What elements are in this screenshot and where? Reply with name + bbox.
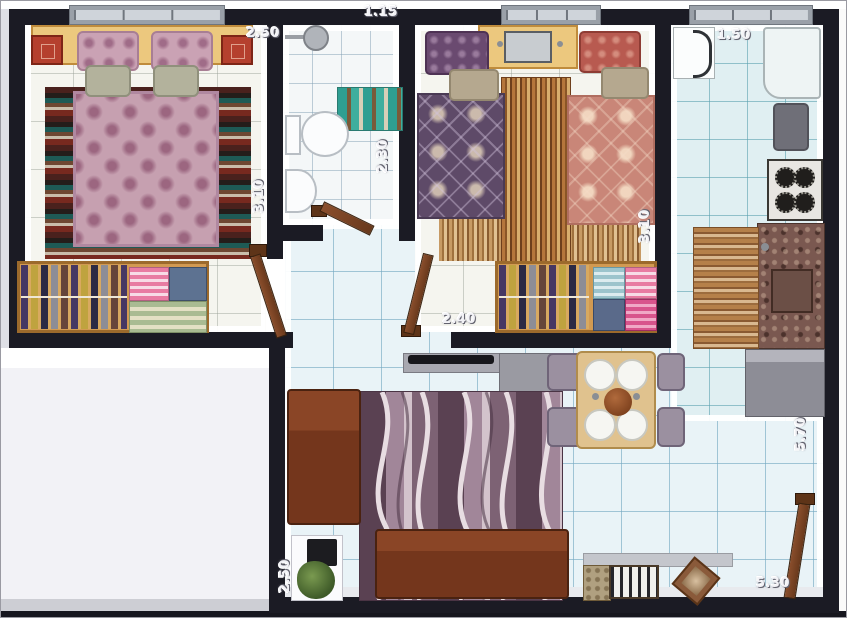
nightstand-left xyxy=(31,35,63,65)
dining-table xyxy=(576,351,656,449)
dim-bedroom1-depth: 3.10 xyxy=(253,173,267,219)
sofa xyxy=(375,529,569,599)
kitchen-rug xyxy=(693,227,759,349)
wall-right xyxy=(823,9,839,613)
bed-cushion xyxy=(85,65,131,97)
kitchen-base-cabinet xyxy=(745,349,825,417)
bed-cushion xyxy=(449,69,499,101)
plate xyxy=(584,359,616,391)
sideboard xyxy=(583,565,611,601)
dim-bedroom2-depth: 3.10 xyxy=(639,203,653,249)
bedroom2-window xyxy=(501,5,601,25)
toilet-tank xyxy=(285,115,301,155)
folded-clothes xyxy=(625,299,657,331)
dim-bathroom-width: 1.15 xyxy=(359,6,403,20)
floor-plan: 2.50 3.10 1.15 2.30 3.10 2.40 1.50 5.70 … xyxy=(0,0,847,618)
dim-bathroom-depth: 2.30 xyxy=(377,133,391,179)
double-bed xyxy=(73,91,219,247)
headboard-mirror xyxy=(504,31,552,63)
book-rack xyxy=(609,565,659,599)
wall-bathroom-bottom xyxy=(267,225,323,241)
wardrobe-rail xyxy=(499,296,589,298)
exterior-white-band xyxy=(1,348,269,368)
wall-bedroom1-bottom xyxy=(9,332,293,348)
table-dot xyxy=(633,393,640,400)
folded-clothes xyxy=(593,299,625,331)
dim-living-left-depth: 2.50 xyxy=(279,553,293,599)
plate xyxy=(616,359,648,391)
wall-bedroom1-bathroom xyxy=(267,9,283,259)
bed-cushion xyxy=(153,65,199,97)
counter-sink xyxy=(771,269,813,313)
exterior-left-strip xyxy=(1,9,9,348)
shower-head xyxy=(303,25,329,51)
plant xyxy=(297,561,335,599)
wardrobe-rail xyxy=(21,296,127,298)
wall-bedroom2-kitchen xyxy=(655,9,671,348)
table-dot xyxy=(592,393,599,400)
sideboard-gray xyxy=(499,353,553,393)
exterior-area xyxy=(1,348,269,618)
wall-bedroom2-bottom xyxy=(451,332,671,348)
dim-hall-width: 2.40 xyxy=(437,313,481,327)
folded-clothes xyxy=(593,267,625,299)
twin-bed-left xyxy=(417,93,505,219)
stove xyxy=(767,159,823,221)
fridge xyxy=(763,27,821,99)
headboard-knob xyxy=(497,41,503,47)
folded-clothes xyxy=(129,267,169,301)
folded-clothes xyxy=(625,267,657,299)
sofa-chaise xyxy=(287,389,361,525)
toilet-bowl xyxy=(301,111,349,157)
folded-clothes xyxy=(129,301,207,333)
cutting-board xyxy=(773,103,809,151)
center-bowl xyxy=(604,388,632,416)
dim-bedroom1-width: 2.50 xyxy=(237,27,289,41)
tv xyxy=(408,355,494,364)
dim-kitchen-width: 1.50 xyxy=(711,29,757,43)
exterior-right-strip xyxy=(839,9,847,611)
bed-cushion xyxy=(601,67,649,99)
kitchen-window xyxy=(689,5,813,25)
bedroom2-runner-rug xyxy=(501,77,571,263)
dim-right-depth: 5.70 xyxy=(795,411,809,457)
headboard-knob xyxy=(557,41,563,47)
dim-living-bottom-width: 5.30 xyxy=(749,577,797,591)
folded-clothes xyxy=(169,267,207,301)
kitchen-sink xyxy=(673,27,715,79)
bedroom1-headboard xyxy=(31,25,253,65)
dining-chair xyxy=(657,407,685,447)
bedroom1-window xyxy=(69,5,225,25)
dining-chair xyxy=(657,353,685,391)
faucet xyxy=(761,243,769,251)
